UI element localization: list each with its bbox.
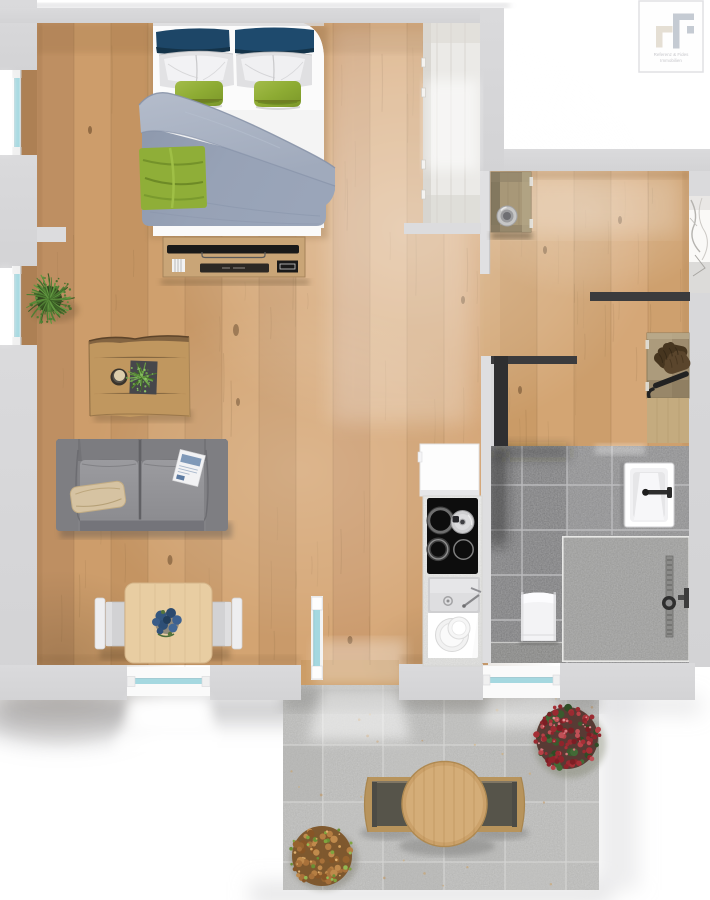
svg-text:Referenz & Fides: Referenz & Fides bbox=[654, 52, 690, 57]
svg-text:Immobilien: Immobilien bbox=[660, 58, 682, 63]
